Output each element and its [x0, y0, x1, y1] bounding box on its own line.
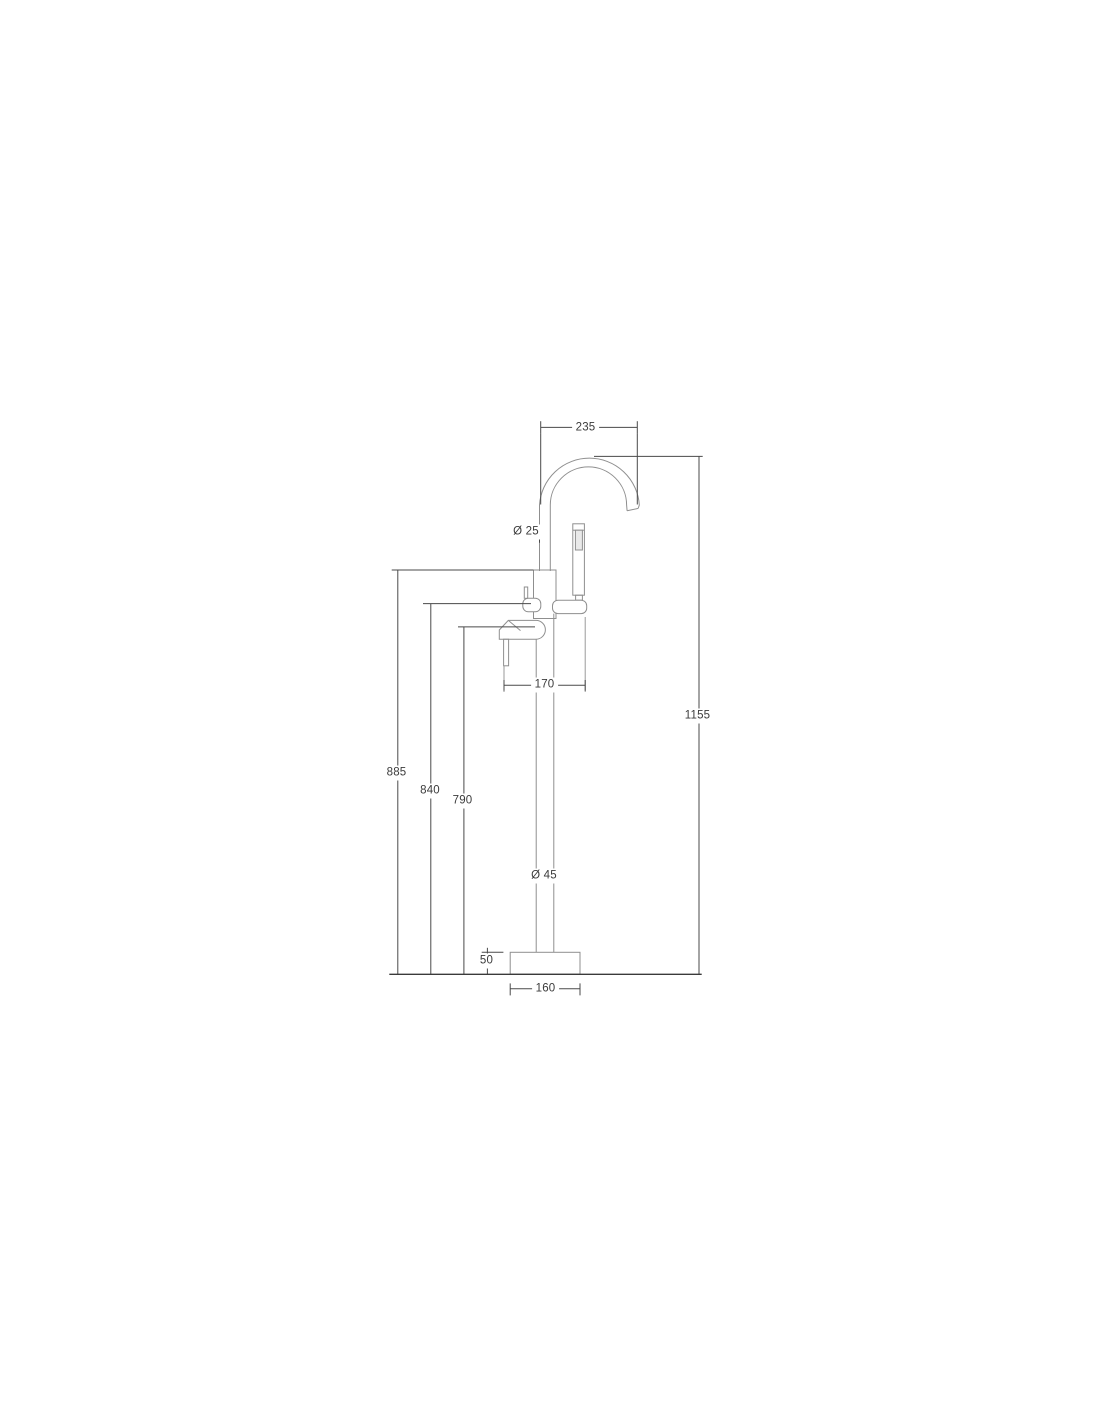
- dim-label-total-height: 1155: [681, 708, 715, 723]
- handshower-connector: [576, 595, 583, 600]
- technical-drawing-canvas: 235 Ø 25 170 1155 885 840 790 Ø 45 50 16…: [0, 0, 1100, 1422]
- diverter-pin: [524, 587, 527, 598]
- handle-body: [499, 620, 545, 639]
- handshower-head-inset: [575, 530, 582, 550]
- dim-label-handle-spread: 170: [531, 677, 559, 692]
- dim-label-spout-base-height: 885: [383, 765, 411, 780]
- spout-inner-curve: [550, 467, 627, 571]
- dim-label-base-plate-height: 50: [476, 954, 497, 969]
- dim-label-spout-width: 235: [572, 420, 600, 435]
- spout-outer-curve: [540, 458, 640, 571]
- spout-outlet-tip: [627, 508, 638, 510]
- dim-label-spout-pipe-diameter: Ø 25: [509, 524, 543, 539]
- dim-label-handle-height: 790: [449, 793, 477, 808]
- drawing-svg: [0, 0, 1100, 1422]
- dim-label-column-diameter: Ø 45: [527, 869, 561, 884]
- base-plate: [510, 952, 580, 974]
- diverter-knob: [523, 598, 541, 612]
- dim-label-diverter-height: 840: [416, 783, 444, 798]
- handshower-holder: [553, 600, 587, 613]
- dimension-lines: [392, 421, 703, 995]
- handle-lever: [504, 639, 509, 666]
- dim-label-base-plate-width: 160: [532, 981, 560, 996]
